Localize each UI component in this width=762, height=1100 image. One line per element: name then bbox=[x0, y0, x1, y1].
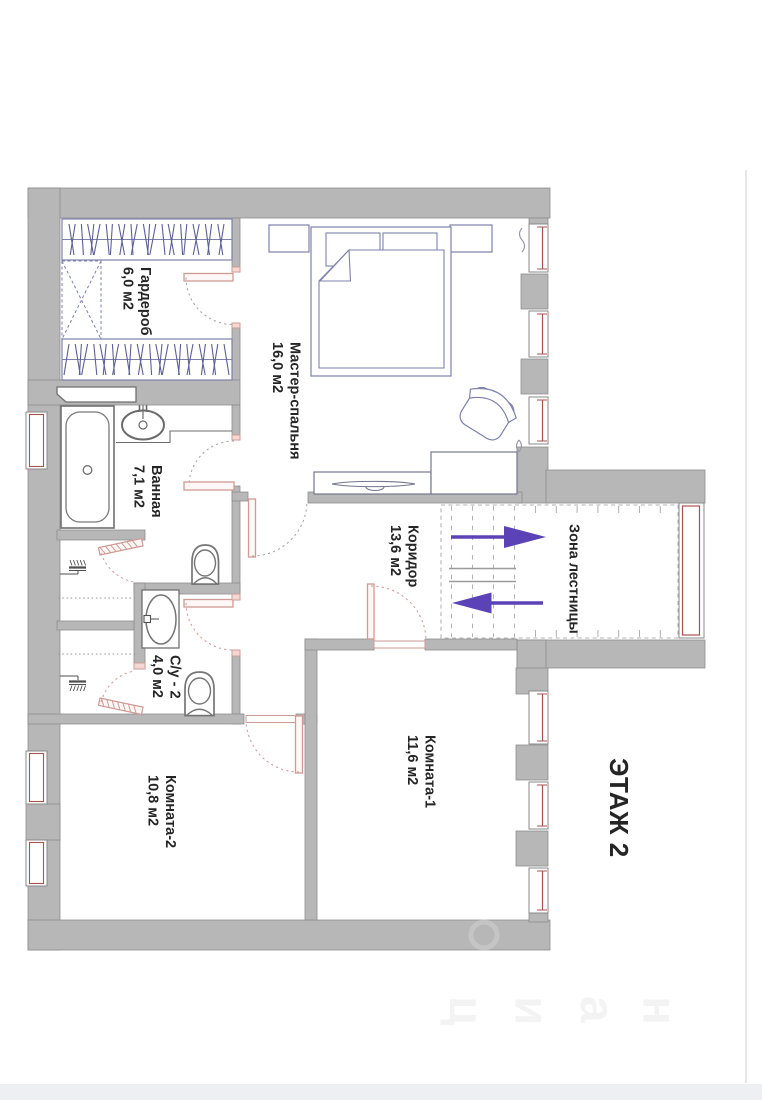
svg-text:Гардероб6,0 м2: Гардероб6,0 м2 bbox=[120, 267, 154, 336]
svg-text:Комната-111,6 м2: Комната-111,6 м2 bbox=[404, 735, 438, 808]
svg-text:Ванная7,1 м2: Ванная7,1 м2 bbox=[131, 465, 165, 518]
svg-text:циан: циан bbox=[439, 996, 686, 1062]
svg-text:Комната-210,8 м2: Комната-210,8 м2 bbox=[145, 775, 179, 848]
svg-text:ЭТАЖ 2: ЭТАЖ 2 bbox=[604, 758, 634, 858]
svg-text:Зона лестницы: Зона лестницы bbox=[566, 524, 582, 634]
svg-text:Мастер-спальня16,0 м2: Мастер-спальня16,0 м2 bbox=[269, 342, 303, 459]
svg-text:Коридор13,6 м2: Коридор13,6 м2 bbox=[387, 525, 421, 588]
svg-text:С/у - 24,0 м2: С/у - 24,0 м2 bbox=[149, 655, 183, 699]
